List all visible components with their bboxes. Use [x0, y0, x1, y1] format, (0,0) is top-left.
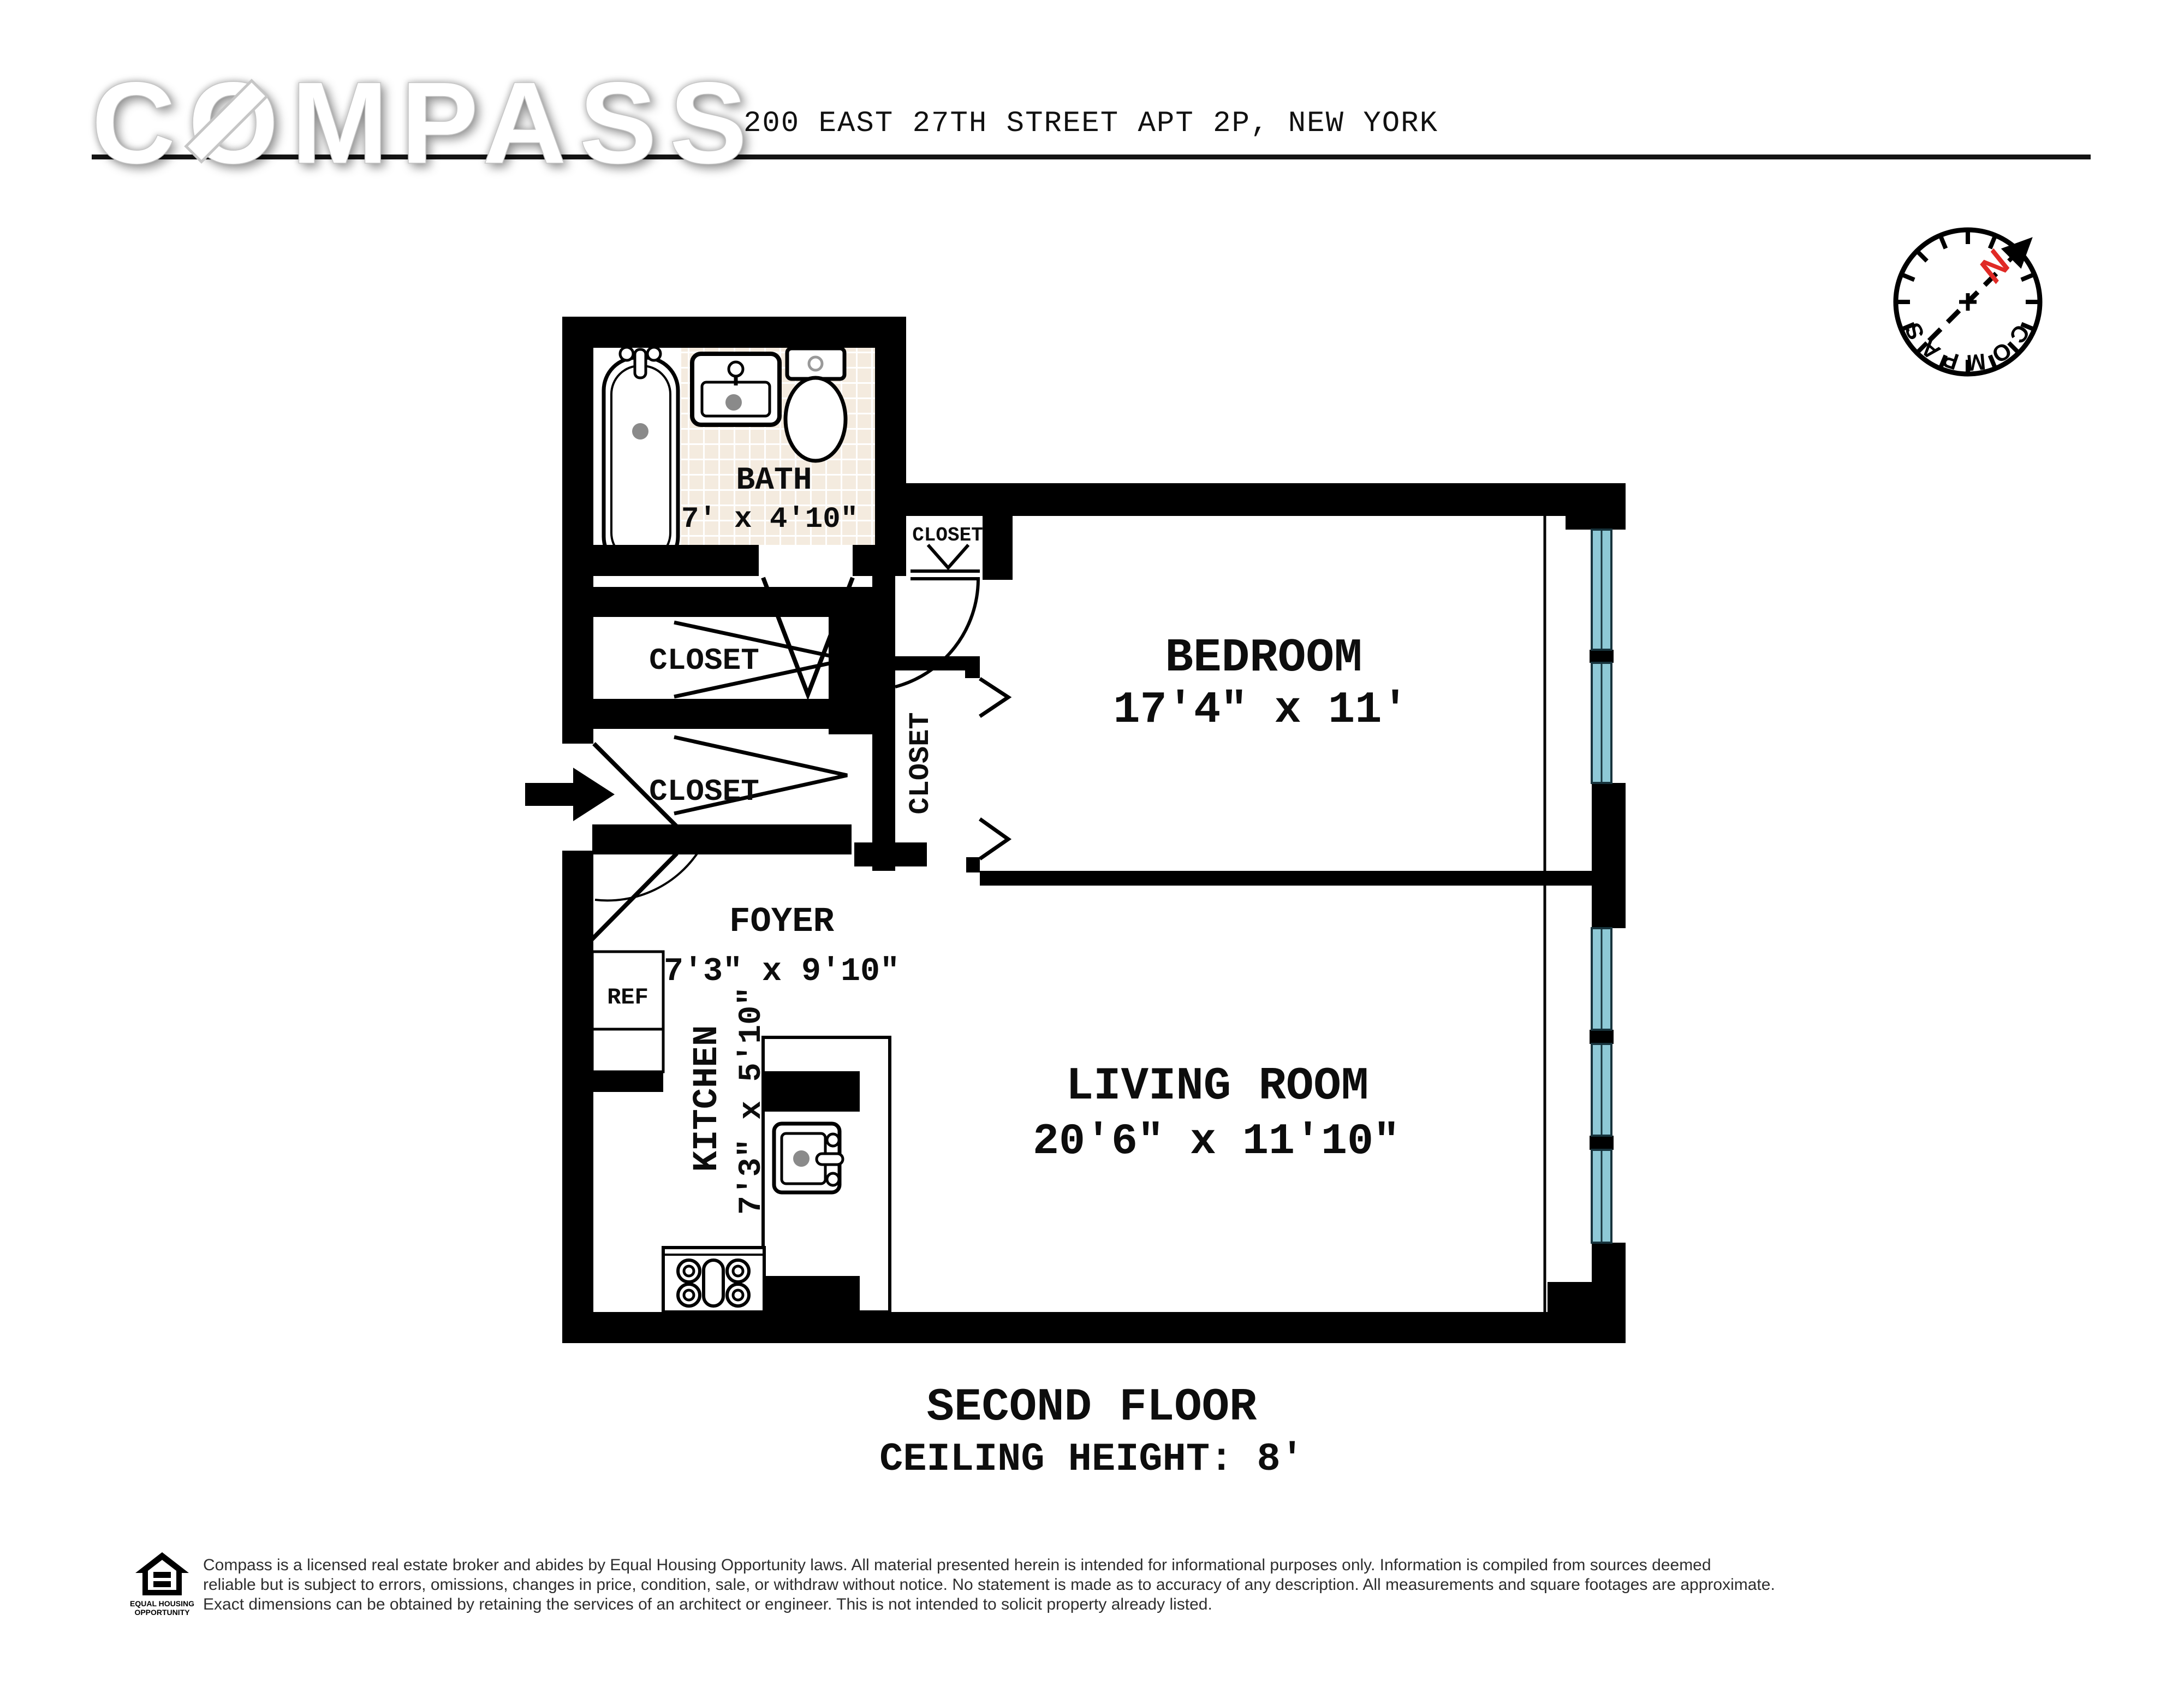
plan-title: SECOND FLOOR CEILING HEIGHT: 8' [879, 1382, 1304, 1482]
foyer-dims: 7'3" x 9'10" [664, 953, 900, 990]
bedroom-label: BEDROOM [1165, 631, 1362, 685]
kitchen-label: KITCHEN [688, 1025, 727, 1172]
living-room-label: LIVING ROOM [1066, 1061, 1369, 1113]
foyer-label: FOYER [729, 903, 835, 942]
stove-icon [663, 1248, 764, 1312]
disclaimer-line-2: reliable but is subject to errors, omiss… [203, 1576, 1775, 1594]
bedroom-closet-chevron-top [980, 679, 1008, 716]
bedroom-closet-chevron-bottom [980, 819, 1008, 859]
eho-label-2: OPPORTUNITY [134, 1608, 190, 1617]
bedroom-closet-label: CLOSET [904, 712, 937, 814]
bath-sink-icon [692, 354, 779, 425]
compass-logo: COMPASS [92, 58, 760, 187]
compass-rose-icon: N COMPASS [1896, 227, 2043, 377]
disclaimer-line-1: Compass is a licensed real estate broker… [203, 1556, 1711, 1574]
entry-arrow-icon [525, 768, 615, 821]
closet2-label: CLOSET [649, 774, 759, 809]
footer: EQUAL HOUSING OPPORTUNITY Compass is a l… [130, 1552, 1775, 1617]
living-room-window [1592, 928, 1611, 1243]
toilet-icon [785, 348, 846, 461]
floorplan-canvas: COMPASS 200 EAST 27TH STREET APT 2P, NEW… [0, 0, 2184, 1689]
header: COMPASS 200 EAST 27TH STREET APT 2P, NEW… [92, 58, 2091, 187]
floorplan-page: { "header": { "logo_text": "COMPASS", "a… [0, 0, 2184, 1689]
kitchen-dims: 7'3" x 5'10" [734, 987, 770, 1215]
closet-label-small: CLOSET [912, 524, 983, 547]
bath-dims: 7' x 4'10" [681, 503, 858, 536]
ceiling-title: CEILING HEIGHT: 8' [879, 1437, 1304, 1482]
small-closet-door [928, 545, 968, 568]
refrigerator-label: REF [607, 984, 648, 1011]
bedroom-dims: 17'4" x 11' [1113, 685, 1408, 735]
equal-housing-icon: EQUAL HOUSING OPPORTUNITY [130, 1552, 194, 1617]
listing-address: 200 EAST 27TH STREET APT 2P, NEW YORK [743, 107, 1438, 140]
bath-label: BATH [736, 463, 812, 498]
entry-door-arc [595, 850, 700, 900]
closet1-label: CLOSET [649, 643, 759, 678]
kitchen-sink-icon [774, 1124, 843, 1192]
floor-plan: BATH 7' x 4'10" CLOSET BEDROOM 17'4" x 1… [525, 317, 1626, 1343]
eho-label-1: EQUAL HOUSING [130, 1599, 194, 1608]
kitchen-cabinet [592, 1029, 663, 1072]
floor-title: SECOND FLOOR [927, 1382, 1257, 1434]
living-room-dims: 20'6" x 11'10" [1033, 1117, 1400, 1167]
disclaimer-line-3: Exact dimensions can be obtained by reta… [203, 1595, 1212, 1613]
bathtub-icon [604, 347, 678, 569]
